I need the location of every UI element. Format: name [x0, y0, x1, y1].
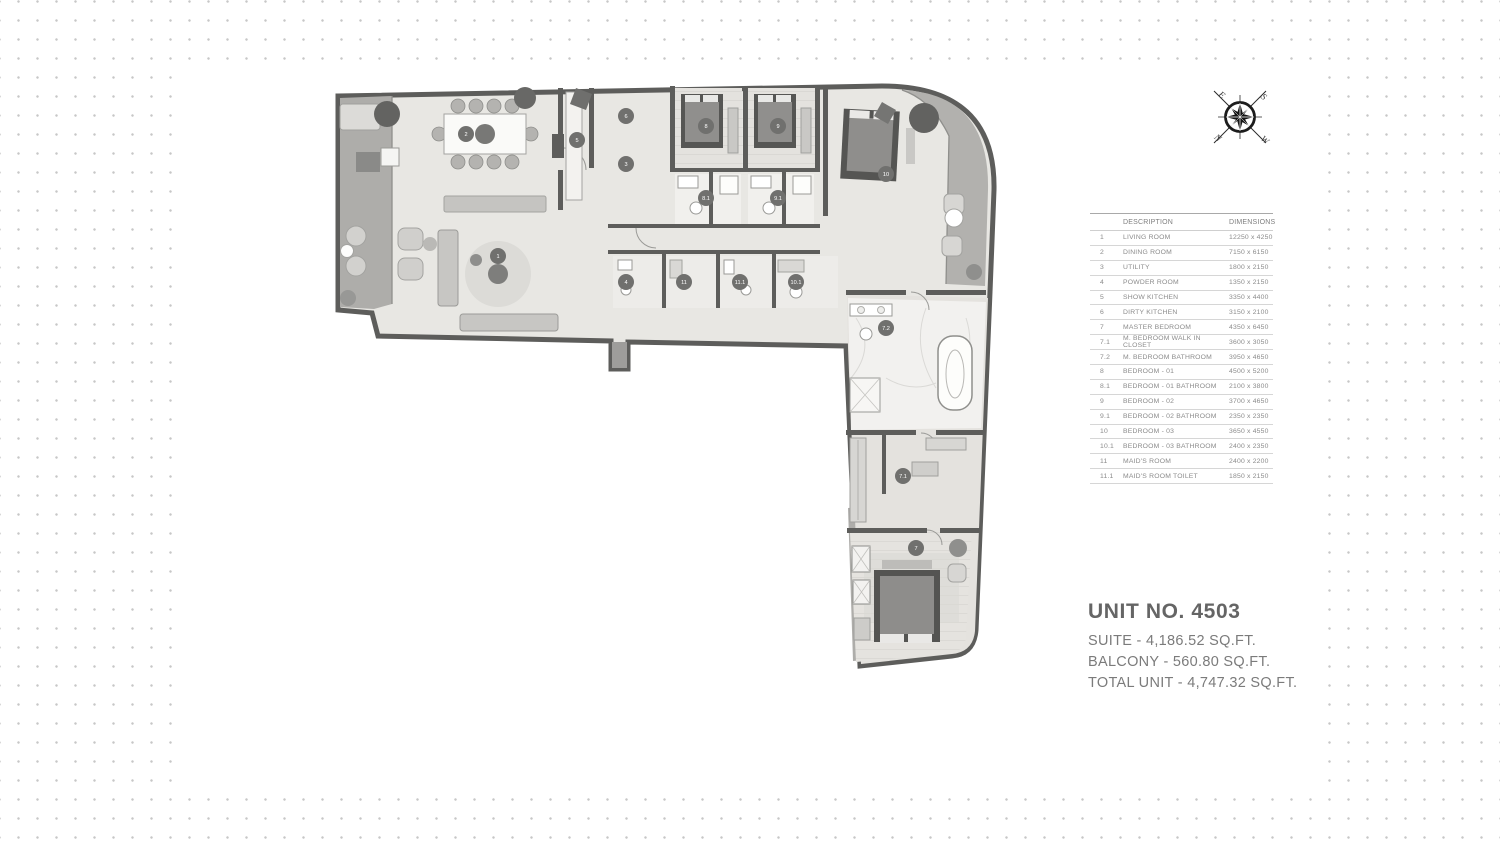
cell-number: 10.1 — [1090, 443, 1123, 450]
table-row: 8.1BEDROOM - 01 BATHROOM2100 x 3800 — [1090, 380, 1273, 395]
cell-number: 11.1 — [1090, 473, 1123, 480]
table-row: 7.1M. BEDROOM WALK IN CLOSET3600 x 3050 — [1090, 335, 1273, 350]
cell-number: 3 — [1090, 264, 1123, 271]
cell-dimensions: 1350 x 2150 — [1229, 279, 1273, 286]
svg-text:2: 2 — [464, 132, 467, 138]
room-marker: 11.1 — [732, 274, 748, 290]
cell-dimensions: 2400 x 2350 — [1229, 443, 1273, 450]
cell-description: BEDROOM - 01 — [1123, 368, 1229, 375]
cell-dimensions: 3600 x 3050 — [1229, 339, 1273, 346]
cell-dimensions: 4500 x 5200 — [1229, 368, 1273, 375]
table-row: 6DIRTY KITCHEN3150 x 2100 — [1090, 305, 1273, 320]
room-marker: 7.2 — [878, 320, 894, 336]
table-row: 3UTILITY1800 x 2150 — [1090, 261, 1273, 276]
cell-dimensions: 3700 x 4650 — [1229, 398, 1273, 405]
room-marker: 8 — [698, 118, 714, 134]
sofa — [460, 314, 558, 331]
table-row: 7.2M. BEDROOM BATHROOM3950 x 4650 — [1090, 350, 1273, 365]
suite-area: SUITE - 4,186.52 SQ.FT. — [1088, 631, 1297, 652]
cell-description: MAID'S ROOM TOILET — [1123, 473, 1229, 480]
cell-dimensions: 3150 x 2100 — [1229, 309, 1273, 316]
cell-number: 8 — [1090, 368, 1123, 375]
spec-table-rows: 1LIVING ROOM12250 x 42502DINING ROOM7150… — [1090, 231, 1273, 484]
cell-description: BEDROOM - 03 — [1123, 428, 1229, 435]
room-marker: 7 — [908, 540, 924, 556]
cell-number: 7 — [1090, 324, 1123, 331]
svg-text:10.1: 10.1 — [791, 280, 802, 286]
cell-dimensions: 3350 x 4400 — [1229, 294, 1273, 301]
shaft-boxes — [852, 546, 870, 640]
double-sink — [850, 304, 892, 316]
cell-description: UTILITY — [1123, 264, 1229, 271]
svg-text:7.2: 7.2 — [882, 326, 890, 332]
cell-dimensions: 3650 x 4550 — [1229, 428, 1273, 435]
table-row: 8BEDROOM - 014500 x 5200 — [1090, 365, 1273, 380]
cell-description: BEDROOM - 02 — [1123, 398, 1229, 405]
cell-dimensions: 1800 x 2150 — [1229, 264, 1273, 271]
unit-info: UNIT NO. 4503 SUITE - 4,186.52 SQ.FT. BA… — [1088, 600, 1297, 694]
entry-tab — [612, 342, 627, 368]
cell-description: MASTER BEDROOM — [1123, 324, 1229, 331]
cell-dimensions: 2100 x 3800 — [1229, 383, 1273, 390]
floor-plan: 12345677.17.288.199.11010.11111.1 — [326, 78, 1006, 690]
table-row: 10.1BEDROOM - 03 BATHROOM2400 x 2350 — [1090, 439, 1273, 454]
room-marker: 11 — [676, 274, 692, 290]
room-marker: 10 — [878, 166, 894, 182]
room-marker: 9 — [770, 118, 786, 134]
cell-number: 8.1 — [1090, 383, 1123, 390]
header-dimensions: DIMENSIONS — [1229, 219, 1273, 226]
table-row: 11.1MAID'S ROOM TOILET1850 x 2150 — [1090, 469, 1273, 484]
cell-number: 4 — [1090, 279, 1123, 286]
table-row: 4POWDER ROOM1350 x 2150 — [1090, 276, 1273, 291]
cell-description: BEDROOM - 01 BATHROOM — [1123, 383, 1229, 390]
armchair — [398, 228, 423, 250]
table-row: 9.1BEDROOM - 02 BATHROOM2350 x 2350 — [1090, 410, 1273, 425]
cell-description: SHOW KITCHEN — [1123, 294, 1229, 301]
room-marker: 6 — [618, 108, 634, 124]
cell-dimensions: 4350 x 6450 — [1229, 324, 1273, 331]
svg-text:5: 5 — [575, 138, 578, 144]
cell-number: 9.1 — [1090, 413, 1123, 420]
svg-text:9.1: 9.1 — [774, 196, 782, 202]
cell-description: M. BEDROOM BATHROOM — [1123, 354, 1229, 361]
cell-dimensions: 1850 x 2150 — [1229, 473, 1273, 480]
svg-text:10: 10 — [883, 172, 889, 178]
cell-description: BEDROOM - 02 BATHROOM — [1123, 413, 1229, 420]
cell-number: 10 — [1090, 428, 1123, 435]
cell-number: 11 — [1090, 458, 1123, 465]
room-marker: 10.1 — [788, 274, 804, 290]
coffee-table — [488, 264, 508, 284]
cell-number: 9 — [1090, 398, 1123, 405]
svg-text:11: 11 — [681, 280, 687, 286]
unit-number-title: UNIT NO. 4503 — [1088, 600, 1297, 624]
room-marker: 4 — [618, 274, 634, 290]
plant — [514, 87, 536, 109]
plant — [949, 539, 967, 557]
cell-number: 5 — [1090, 294, 1123, 301]
svg-text:7: 7 — [914, 546, 917, 552]
table-row: 5SHOW KITCHEN3350 x 4400 — [1090, 291, 1273, 306]
room-marker: 5 — [569, 132, 585, 148]
svg-text:4: 4 — [624, 280, 627, 286]
cell-number: 7.1 — [1090, 339, 1123, 346]
sofa — [438, 230, 458, 306]
table-row: 1LIVING ROOM12250 x 4250 — [1090, 231, 1273, 246]
planter — [374, 101, 400, 127]
header-description: DESCRIPTION — [1123, 219, 1229, 226]
table-header: DESCRIPTION DIMENSIONS — [1090, 213, 1273, 231]
cell-dimensions: 2400 x 2200 — [1229, 458, 1273, 465]
room-marker: 1 — [490, 248, 506, 264]
cell-description: DIRTY KITCHEN — [1123, 309, 1229, 316]
compass-letter: W — [1259, 133, 1272, 146]
svg-text:9: 9 — [776, 124, 779, 130]
cell-number: 7.2 — [1090, 354, 1123, 361]
table-row: 2DINING ROOM7150 x 6150 — [1090, 246, 1273, 261]
cell-description: BEDROOM - 03 BATHROOM — [1123, 443, 1229, 450]
console — [444, 196, 546, 212]
room-marker: 9.1 — [770, 190, 786, 206]
page: 12345677.17.288.199.11010.11111.1 ESWN D… — [0, 0, 1500, 842]
compass-letter: S — [1259, 91, 1269, 102]
toilet — [860, 328, 872, 340]
table-row: 11MAID'S ROOM2400 x 2200 — [1090, 454, 1273, 469]
armchair — [398, 258, 423, 280]
table-row: 10BEDROOM - 033650 x 4550 — [1090, 425, 1273, 440]
cell-description: MAID'S ROOM — [1123, 458, 1229, 465]
chair — [948, 564, 966, 582]
planter — [909, 103, 939, 133]
room-marker: 2 — [458, 126, 474, 142]
room-marker: 3 — [618, 156, 634, 172]
svg-text:3: 3 — [624, 162, 627, 168]
room-marker: 8.1 — [698, 190, 714, 206]
cell-description: POWDER ROOM — [1123, 279, 1229, 286]
room-spec-table: DESCRIPTION DIMENSIONS 1LIVING ROOM12250… — [1090, 213, 1273, 484]
compass-letter: E — [1216, 88, 1228, 100]
bathtub — [938, 336, 972, 410]
svg-text:8.1: 8.1 — [702, 196, 710, 202]
cell-description: DINING ROOM — [1123, 249, 1229, 256]
cell-number: 2 — [1090, 249, 1123, 256]
svg-text:1: 1 — [496, 254, 499, 260]
cell-number: 6 — [1090, 309, 1123, 316]
svg-text:7.1: 7.1 — [899, 474, 907, 480]
cell-dimensions: 7150 x 6150 — [1229, 249, 1273, 256]
cell-number: 1 — [1090, 234, 1123, 241]
compass-letter: N — [1212, 131, 1225, 144]
compass-rose-icon: ESWN — [1205, 82, 1275, 152]
svg-text:11.1: 11.1 — [735, 280, 745, 286]
cell-dimensions: 12250 x 4250 — [1229, 234, 1273, 241]
cell-dimensions: 3950 x 4650 — [1229, 354, 1273, 361]
cell-description: M. BEDROOM WALK IN CLOSET — [1123, 335, 1229, 349]
svg-text:8: 8 — [704, 124, 707, 130]
balcony-area: BALCONY - 560.80 SQ.FT. — [1088, 652, 1297, 673]
cell-description: LIVING ROOM — [1123, 234, 1229, 241]
cell-dimensions: 2350 x 2350 — [1229, 413, 1273, 420]
table-row: 9BEDROOM - 023700 x 4650 — [1090, 395, 1273, 410]
svg-text:6: 6 — [624, 114, 627, 120]
room-marker: 7.1 — [895, 468, 911, 484]
total-unit-area: TOTAL UNIT - 4,747.32 SQ.FT. — [1088, 673, 1297, 694]
table-row: 7MASTER BEDROOM4350 x 6450 — [1090, 320, 1273, 335]
